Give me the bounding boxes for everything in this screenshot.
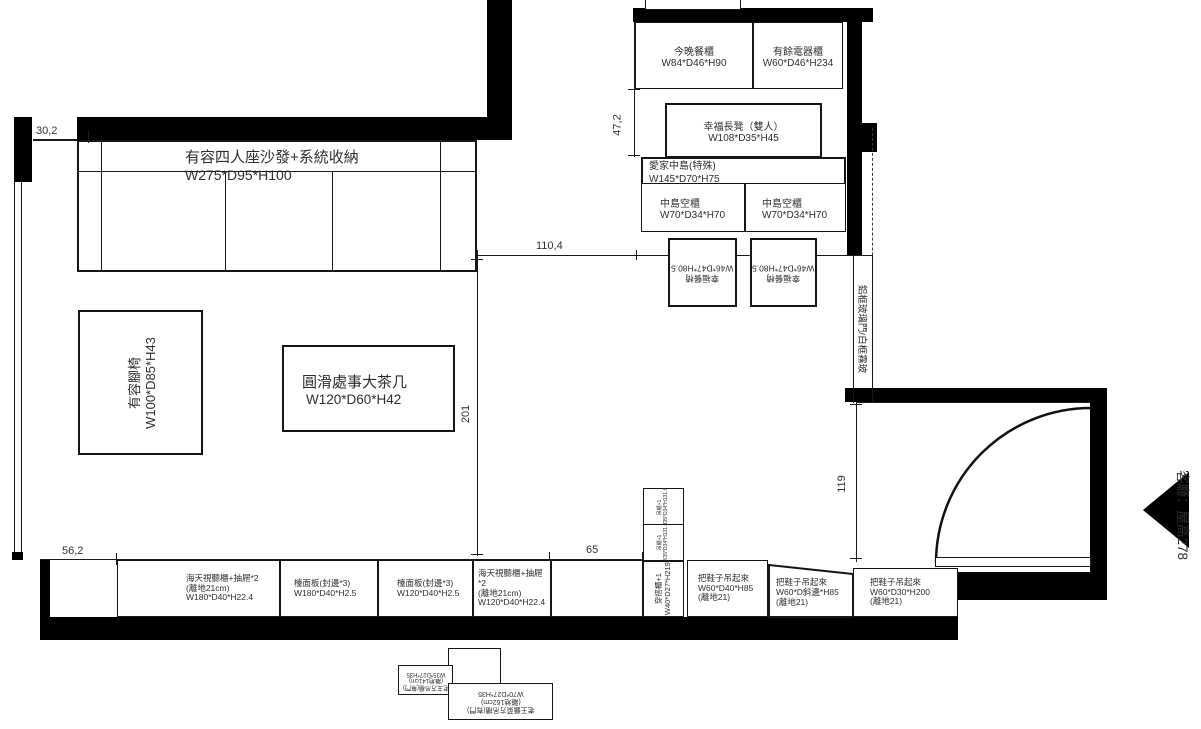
- tv-cabinet-w120: 海天視聽櫃+抽屜*2 (離地21cm) W120*D40*H22.4: [473, 560, 551, 617]
- hanging-cabinet-small-dims: W35*D27*H35: [403, 670, 449, 677]
- hanging-cabinet-small: 老王方吊櫃(無門) (離地141cm) W35*D27*H35: [398, 665, 453, 695]
- chair-left-dims: W46*D47*H80.5: [671, 263, 733, 273]
- island-cabinet-left-dims: W70*D34*H70: [660, 210, 744, 221]
- entry-top-line: [856, 402, 1090, 403]
- island-cabinet-left: 中島空櫃 W70*D34*H70: [641, 183, 745, 232]
- dim-opening: 110,4: [536, 240, 563, 253]
- empty-cabinet: [551, 560, 643, 617]
- bench-label: 幸福長凳（雙人） W108*D35*H45: [704, 118, 784, 144]
- upper-box-top: 吊櫃+1 W35*D34*H131.6: [643, 488, 684, 526]
- bench: 幸福長凳（雙人） W108*D35*H45: [665, 103, 822, 158]
- sofa-dims: W275*D95*H100: [185, 167, 359, 184]
- counter-w180: 檯面板(封邊*3) W180*D40*H2.5: [280, 560, 378, 617]
- hanging-cabinet-small-label: 老王方吊櫃(無門) (離地141cm) W35*D27*H35: [403, 670, 449, 690]
- upper-box-top-label: 吊櫃+1 W35*D34*H131.6: [658, 487, 669, 526]
- chair-left-label: 幸福餐椅 W46*D47*H80.5: [671, 263, 733, 283]
- hanging-cabinet-wide: 老王醬菜方吊櫃(有門) (離地162cm) W70*D27*H35: [448, 683, 553, 720]
- chair-left-name: 幸福餐椅: [671, 273, 733, 283]
- shoe-cabinet-2-label: 把鞋子吊起來 W60*D斜邊*H85 (離地21): [776, 578, 839, 607]
- tick-gap-b: [628, 155, 640, 156]
- island-cabinet-left-name: 中島空櫃: [660, 195, 744, 210]
- chair-right-label: 幸福餐椅 W46*D47*H80.5: [752, 263, 814, 283]
- wall-bottom-left-stub: [40, 560, 50, 640]
- counter-w180-label: 檯面板(封邊*3) W180*D40*H2.5: [294, 579, 377, 599]
- coffee-table-name: 圓滑處事大茶几: [302, 371, 453, 392]
- wall-top-left-stub: [14, 117, 32, 182]
- shoe-cabinet-1-sub: (離地21): [698, 593, 767, 603]
- upper-box-bottom-dims: W35*D34*H131.6: [664, 523, 670, 562]
- hanging-box-empty: [448, 648, 501, 684]
- wall-entry-bottom: [957, 572, 1107, 600]
- tick-entry-t: [850, 404, 862, 405]
- floor-plan: 有容四人座沙發+系統收納 W275*D95*H100 有容腳椅 W100*D85…: [0, 0, 1201, 729]
- sofa-name: 有容四人座沙發+系統收納: [185, 149, 359, 167]
- upper-box-bottom-label: 吊櫃+1 W35*D34*H131.6: [658, 523, 669, 562]
- tick-depth-t: [471, 259, 483, 260]
- chair-right-dims: W46*D47*H80.5: [752, 263, 814, 273]
- island-cabinet-right: 中島空櫃 W70*D34*H70: [745, 183, 846, 232]
- sofa-label: 有容四人座沙發+系統收納 W275*D95*H100: [185, 149, 359, 184]
- wardrobe-label: 穿搭櫃+1 W40*D27*H219: [655, 563, 672, 616]
- dim-left-bottom: 56,2: [62, 545, 83, 558]
- shoe-cabinet-2-sub: (離地21): [776, 598, 839, 608]
- dining-cabinet-dims: W84*D46*H90: [661, 58, 726, 69]
- ottoman-name: 有容腳椅: [124, 337, 143, 429]
- dim-top-left-line: [33, 139, 78, 141]
- wall-kitchen-top: [633, 8, 873, 22]
- hanging-cabinet-small-name: 老王方吊櫃(無門): [403, 683, 449, 690]
- wall-top-vertical: [487, 0, 512, 140]
- dining-cabinet-name: 今晚餐櫃: [661, 43, 726, 58]
- sofa-divider-left: [101, 140, 102, 272]
- tick-depth-b: [471, 554, 483, 555]
- tick-top-left: [88, 130, 89, 143]
- dim-column-width: 65: [586, 544, 598, 557]
- upper-box-top-dims: W35*D34*H131.6: [664, 487, 670, 526]
- tick-entry-b: [850, 558, 862, 559]
- counter-w120-dims: W120*D40*H2.5: [397, 589, 472, 599]
- coffee-table-dims: W120*D60*H42: [302, 392, 453, 407]
- ottoman: 有容腳椅 W100*D85*H43: [78, 310, 203, 455]
- island-cabinet-right-dims: W70*D34*H70: [762, 210, 845, 221]
- shoe-cabinet-3: 把鞋子吊起來 W60*D30*H200 (離地21): [853, 568, 958, 617]
- sofa-divider-1: [225, 171, 226, 272]
- upper-box-bottom: 吊櫃+1 W35*D34*H131.6: [643, 524, 684, 561]
- bench-dims: W108*D35*H45: [704, 133, 784, 144]
- island-name: 愛家中島(特殊): [649, 161, 844, 174]
- shoe-cabinet-3-sub: (離地21): [870, 597, 957, 607]
- counter-w120: 檯面板(封邊*3) W120*D40*H2.5: [378, 560, 473, 617]
- wall-bottom: [40, 617, 958, 640]
- chair-left: 幸福餐椅 W46*D47*H80.5: [668, 238, 737, 307]
- door-swing-arc: [933, 404, 1093, 566]
- wardrobe-dims: W40*D27*H219: [664, 563, 673, 616]
- partial-box-top: [645, 0, 741, 10]
- ottoman-label: 有容腳椅 W100*D85*H43: [124, 337, 158, 429]
- sofa-divider-2: [332, 171, 333, 272]
- counter-w120-label: 檯面板(封邊*3) W120*D40*H2.5: [397, 579, 472, 599]
- appliance-cabinet-label: 有餘電器櫃 W60*D46*H234: [763, 43, 834, 69]
- hanging-cabinet-wide-name: 老王醬菜方吊櫃(有門): [467, 706, 535, 714]
- dim-entry-depth: 119: [836, 475, 848, 493]
- dim-kitchen-gap: 47,2: [612, 114, 624, 135]
- appliance-cabinet-dims: W60*D46*H234: [763, 58, 834, 69]
- chair-right-name: 幸福餐椅: [752, 273, 814, 283]
- wardrobe: 穿搭櫃+1 W40*D27*H219: [643, 561, 684, 617]
- island-cabinet-right-name: 中島空櫃: [762, 195, 845, 210]
- dining-cabinet: 今晚餐櫃 W84*D46*H90: [635, 22, 753, 89]
- shoe-cabinet-1: 把鞋子吊起來 W60*D40*H85 (離地21): [687, 560, 768, 617]
- hanging-cabinet-wide-dims: W70*D27*H35: [467, 689, 535, 697]
- glass-door-panel: 鋁框玻璃門/白框霧玻: [853, 255, 873, 403]
- chair-right: 幸福餐椅 W46*D47*H80.5: [750, 238, 817, 307]
- island-label: 愛家中島(特殊) W145*D70*H75: [643, 159, 844, 186]
- ottoman-dims: W100*D85*H43: [143, 337, 158, 429]
- window-end-cap: [12, 552, 23, 560]
- shoe-cabinet-3-label: 把鞋子吊起來 W60*D30*H200 (離地21): [870, 578, 957, 607]
- bench-name: 幸福長凳（雙人）: [704, 118, 784, 133]
- shoe-cabinet-1-label: 把鞋子吊起來 W60*D40*H85 (離地21): [698, 574, 767, 603]
- tv-cabinet-w180: 海天視聽櫃+抽屜*2 (離地21cm) W180*D40*H22.4: [117, 560, 280, 617]
- tick-gap-t: [628, 89, 640, 90]
- dining-cabinet-label: 今晚餐櫃 W84*D46*H90: [661, 43, 726, 69]
- wall-right-stub: [860, 123, 877, 152]
- tv-cabinet-w120-name: 海天視聽櫃+抽屜*2: [478, 569, 550, 589]
- dim-living-depth-line: [477, 256, 478, 556]
- tick-opening-r: [636, 250, 637, 260]
- tv-cabinet-w120-dims: W120*D40*H22.4: [478, 598, 550, 608]
- wall-entry-top: [845, 388, 1107, 402]
- door-leaf: [935, 557, 1091, 567]
- entry-left-line: [856, 402, 857, 562]
- window-left: [14, 182, 22, 558]
- tv-cabinet-w180-label: 海天視聽櫃+抽屜*2 (離地21cm) W180*D40*H22.4: [186, 574, 279, 603]
- dim-top-left: 30,2: [36, 125, 57, 138]
- sofa-divider-right: [440, 140, 441, 272]
- room-note: 客廳：屋高278: [1174, 470, 1194, 560]
- tv-cabinet-w180-dims: W180*D40*H22.4: [186, 593, 279, 603]
- appliance-cabinet: 有餘電器櫃 W60*D46*H234: [753, 22, 843, 89]
- wall-top: [77, 117, 512, 140]
- tv-cabinet-w120-label: 海天視聽櫃+抽屜*2 (離地21cm) W120*D40*H22.4: [478, 569, 550, 608]
- appliance-cabinet-name: 有餘電器櫃: [763, 43, 834, 58]
- dim-living-depth: 201: [460, 405, 472, 423]
- coffee-table: 圓滑處事大茶几 W120*D60*H42: [282, 345, 455, 432]
- hanging-cabinet-small-sub: (離地141cm): [403, 677, 449, 684]
- hanging-cabinet-wide-label: 老王醬菜方吊櫃(有門) (離地162cm) W70*D27*H35: [467, 689, 535, 713]
- counter-w180-dims: W180*D40*H2.5: [294, 589, 377, 599]
- glass-door-label: 鋁框玻璃門/白框霧玻: [856, 285, 870, 373]
